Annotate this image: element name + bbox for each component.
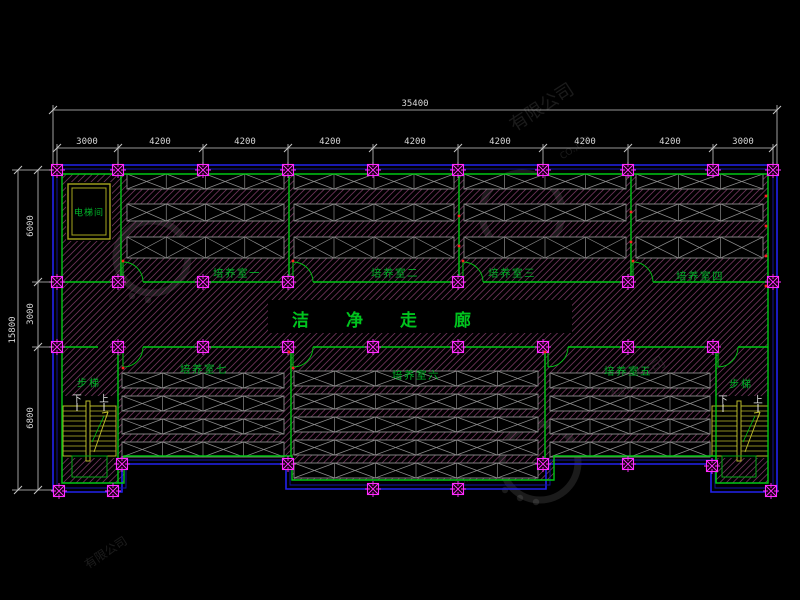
stair-up-label: 上 — [753, 392, 763, 406]
watermark-text: 有限公司 — [506, 79, 578, 136]
column-marker — [450, 481, 466, 497]
red-node-mark — [765, 195, 768, 198]
column-marker — [105, 483, 121, 499]
column-marker — [535, 456, 551, 472]
rack-band — [464, 204, 626, 221]
segment-width-dimension: 4200 — [489, 137, 511, 147]
stair-label: 步梯 — [77, 375, 101, 390]
room-label: 培养室五 — [604, 364, 652, 379]
column-marker — [765, 162, 781, 178]
rack-band — [464, 174, 626, 189]
column-marker — [705, 162, 721, 178]
segment-width-dimension: 4200 — [234, 137, 256, 147]
room-label: 培养室一 — [213, 266, 261, 281]
column-marker — [535, 339, 551, 355]
column-marker — [620, 162, 636, 178]
segment-width-dimension: 4200 — [149, 137, 171, 147]
watermark-dot — [517, 495, 523, 501]
staircase — [63, 401, 116, 461]
segment-width-dimension: 4200 — [404, 137, 426, 147]
room-label: 培养室二 — [371, 266, 419, 281]
column-marker — [280, 162, 296, 178]
segment-height-dimension: 3000 — [26, 303, 36, 325]
column-marker — [450, 162, 466, 178]
segment-width-dimension: 4200 — [319, 137, 341, 147]
red-node-mark — [292, 260, 295, 263]
cad-drawing: 有限公司有限公司CO.,LTD有限公司CO.,LTD — [0, 0, 800, 600]
watermark-dot — [533, 499, 539, 505]
column-marker — [450, 274, 466, 290]
rack-band — [294, 174, 454, 189]
segment-height-dimension: 6000 — [26, 215, 36, 237]
rack-band — [122, 442, 284, 457]
segment-width-dimension: 3000 — [732, 137, 754, 147]
rack-band — [122, 396, 284, 411]
column-marker — [110, 339, 126, 355]
segment-width-dimension: 4200 — [574, 137, 596, 147]
rack-band — [636, 174, 763, 189]
stair-down-label: 下 — [718, 392, 728, 406]
rack-band — [294, 417, 538, 432]
column-marker — [765, 274, 781, 290]
rack-band — [127, 204, 284, 221]
rack-band — [127, 174, 284, 189]
red-node-mark — [630, 241, 633, 244]
red-node-mark — [288, 351, 291, 354]
room-label: 培养室三 — [488, 266, 536, 281]
column-marker — [280, 456, 296, 472]
red-node-mark — [122, 260, 125, 263]
red-node-mark — [630, 211, 633, 214]
red-node-mark — [462, 260, 465, 263]
watermark-text: 有限公司 — [82, 534, 130, 572]
column-marker — [763, 483, 779, 499]
red-node-mark — [765, 285, 768, 288]
segment-height-dimension: 6800 — [26, 407, 36, 429]
room-label: 培养室七 — [180, 362, 228, 377]
red-node-mark — [765, 225, 768, 228]
rack-band — [294, 440, 538, 455]
red-node-mark — [122, 367, 125, 370]
red-node-mark — [632, 260, 635, 263]
room-label: 培养室四 — [676, 269, 724, 284]
floor-plan-canvas: 有限公司有限公司CO.,LTD有限公司CO.,LTD 35400 15800 洁… — [0, 0, 800, 600]
column-marker — [110, 274, 126, 290]
rack-band — [636, 237, 763, 258]
stair-label: 步梯 — [729, 376, 753, 391]
watermark-dot — [502, 487, 508, 493]
stair-divider — [737, 401, 741, 461]
column-marker — [195, 162, 211, 178]
column-marker — [620, 456, 636, 472]
rack-band — [294, 204, 454, 221]
rack-band — [294, 237, 454, 258]
column-marker — [195, 274, 211, 290]
column-marker — [365, 339, 381, 355]
stair-up-label: 上 — [99, 391, 109, 405]
corridor-label: 洁净走廊 — [292, 306, 508, 331]
column-marker — [365, 481, 381, 497]
rack-band — [550, 442, 710, 457]
column-marker — [620, 339, 636, 355]
staircase — [712, 401, 768, 461]
rack-band — [550, 396, 710, 411]
rack-band — [294, 394, 538, 409]
rack-band — [550, 419, 710, 434]
column-marker — [51, 483, 67, 499]
segment-width-dimension: 4200 — [659, 137, 681, 147]
total-width-dimension: 35400 — [401, 99, 428, 109]
rack-band — [127, 237, 284, 258]
column-marker — [114, 456, 130, 472]
column-marker — [620, 274, 636, 290]
column-marker — [450, 339, 466, 355]
column-marker — [110, 162, 126, 178]
red-node-mark — [458, 245, 461, 248]
rack-band — [122, 419, 284, 434]
column-marker — [365, 162, 381, 178]
segment-width-dimension: 3000 — [76, 137, 98, 147]
elevator-room-label: 电梯间 — [74, 206, 104, 219]
rack-band — [464, 237, 626, 258]
red-node-mark — [765, 255, 768, 258]
red-node-mark — [458, 215, 461, 218]
column-marker — [195, 339, 211, 355]
column-marker — [704, 458, 720, 474]
red-node-mark — [544, 351, 547, 354]
room-label: 培养室六 — [392, 368, 440, 383]
red-node-mark — [292, 367, 295, 370]
rack-band — [636, 204, 763, 221]
column-marker — [705, 339, 721, 355]
column-marker — [280, 274, 296, 290]
rack-band — [294, 463, 538, 478]
stair-down-label: 下 — [72, 391, 82, 405]
column-marker — [535, 162, 551, 178]
total-height-dimension: 15800 — [8, 316, 18, 343]
stair-divider — [86, 401, 90, 461]
